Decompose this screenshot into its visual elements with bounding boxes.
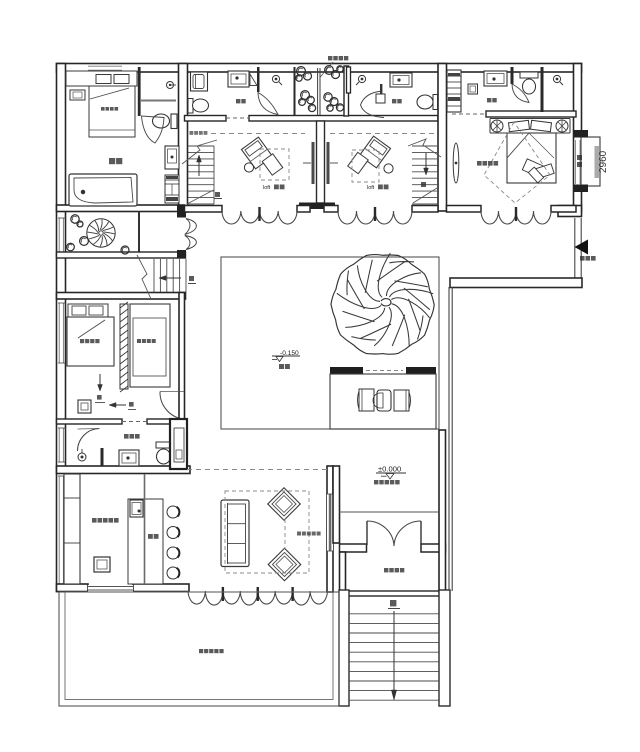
svg-text:±0.000: ±0.000 [378,465,401,474]
svg-text:2960: 2960 [598,150,609,173]
svg-text:loft: loft [367,185,375,191]
svg-text:loft: loft [263,185,271,191]
